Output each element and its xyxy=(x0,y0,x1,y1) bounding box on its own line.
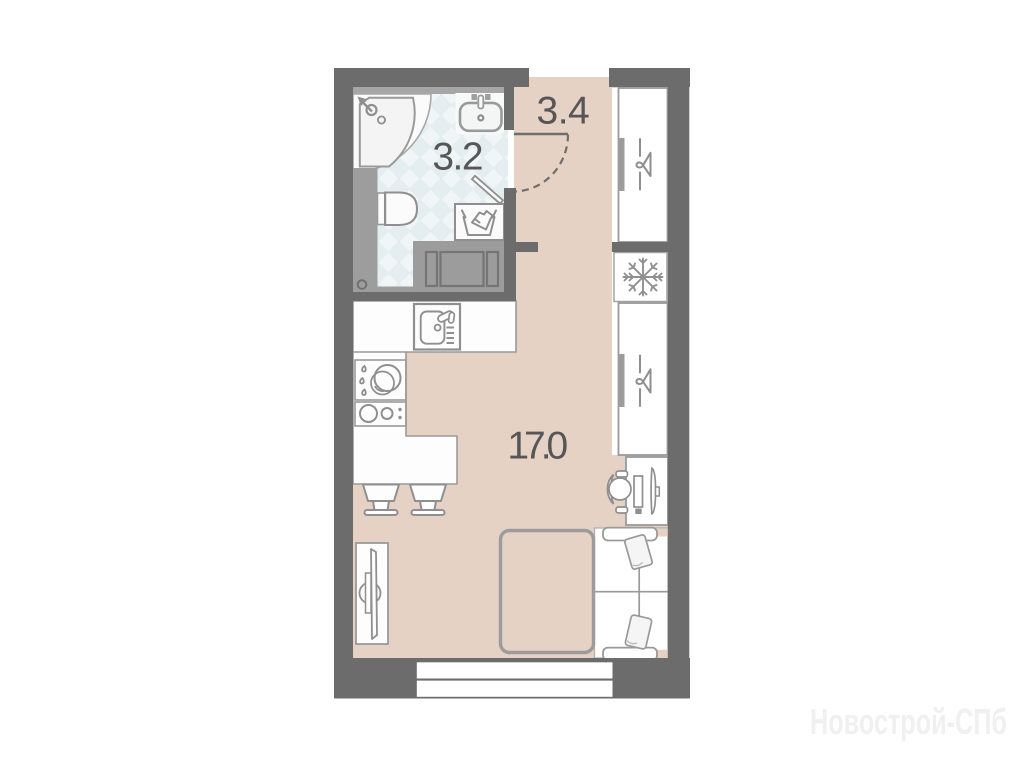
svg-text:3.4: 3.4 xyxy=(537,90,590,133)
svg-text:17.0: 17.0 xyxy=(507,425,567,468)
svg-text:Новострой-СПб: Новострой-СПб xyxy=(810,701,1007,742)
svg-text:3.2: 3.2 xyxy=(432,135,482,178)
